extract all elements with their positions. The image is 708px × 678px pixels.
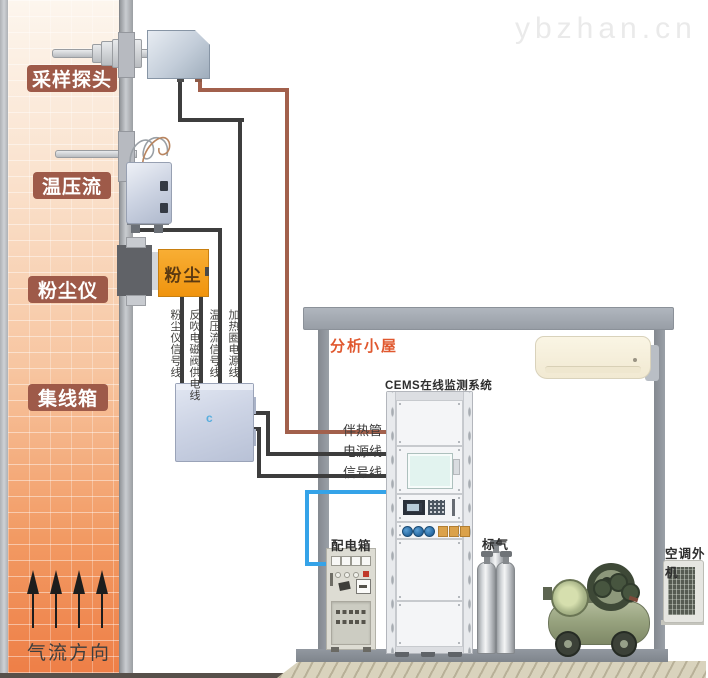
distribution-box	[326, 548, 376, 650]
controller-keypad	[428, 500, 445, 515]
cabinet-rail-right	[463, 392, 472, 653]
wire-signal-v	[257, 427, 261, 478]
wire-blue-v	[305, 490, 309, 566]
controller-slider	[452, 499, 455, 516]
indicator-lamp	[353, 572, 359, 578]
cable-label-power-line: 电源线	[343, 441, 382, 460]
indicator-lamp	[335, 572, 341, 578]
cems-installation-diagram: ybzhan.cn 采样探头 温压流 粉尘仪 集线箱 气流方向 粉尘	[0, 0, 708, 678]
vent-slot-row	[336, 610, 366, 614]
cable-label-heat-traced-tube: 伴热管	[343, 420, 382, 439]
stack-label-dust-meter: 粉尘仪	[28, 276, 108, 303]
cable-label-tpf-signal: 温压流信号线	[207, 309, 220, 378]
ac-indoor-vent	[545, 366, 641, 373]
cable-label-dust-signal: 粉尘仪信号线	[168, 309, 181, 378]
stack-right-wall	[119, 0, 133, 673]
junction-box-logo: c	[206, 411, 213, 425]
dust-mount-cap	[126, 237, 146, 248]
shelter-roof	[303, 307, 674, 330]
terminal-slot	[330, 573, 333, 586]
valve-knob	[424, 526, 435, 537]
distribution-vent-panel	[331, 601, 371, 645]
dust-meter-mount	[117, 245, 152, 296]
sampling-probe-box	[147, 30, 210, 79]
stack-label-junction-box: 集线箱	[28, 384, 108, 411]
dust-mount-cap	[126, 295, 146, 306]
power-meter	[356, 579, 371, 594]
tpf-box-leg	[154, 224, 163, 233]
cable-label-blowback-valve-power: 反吹电磁阀供电线	[187, 309, 200, 401]
probe-wall-plate	[118, 32, 135, 78]
distribution-box-foot	[363, 647, 371, 652]
cable-label-heating-coil-power: 加热圈电源线	[226, 309, 239, 378]
indicator-window	[351, 556, 361, 566]
indicator-window	[341, 556, 351, 566]
compressor-wheel	[555, 631, 581, 657]
stack-left-wall	[0, 0, 8, 673]
heat-traced-tube-v	[285, 88, 289, 434]
dust-meter-tab	[205, 267, 209, 276]
cabinet-rail-left	[387, 392, 396, 653]
flow-meter	[460, 526, 470, 537]
wire-heating-coil-h	[178, 118, 244, 122]
analyzer-side-latch	[453, 459, 460, 475]
valve-knob	[402, 526, 413, 537]
distribution-box-foot	[331, 647, 339, 652]
red-indicator	[363, 571, 369, 577]
ac-indoor-unit	[535, 336, 651, 379]
wire-blue-h1	[305, 490, 390, 494]
cable-label-signal-line: 信号线	[343, 462, 382, 481]
vent-slot-row	[336, 620, 366, 624]
compressor-motor	[551, 579, 589, 617]
cabinet-panel-analyzer	[396, 446, 463, 494]
cabinet-panel-blank	[396, 539, 463, 601]
gas-cylinder	[496, 562, 515, 654]
cabinet-foot	[448, 652, 462, 657]
indicator-lamp	[344, 572, 350, 578]
standard-gas-label: 标气	[482, 534, 509, 553]
indicator-window	[361, 556, 371, 566]
tpf-box-slot	[160, 203, 168, 213]
airflow-direction-label: 气流方向	[27, 638, 111, 665]
flow-meter	[438, 526, 448, 537]
cabinet-panel-valves	[396, 522, 463, 539]
stack-label-sampling-probe: 采样探头	[27, 65, 117, 92]
shelter-title: 分析小屋	[330, 335, 398, 356]
stack-bottom-edge	[0, 673, 299, 678]
compressor-wheel	[611, 631, 637, 657]
analyzer-window	[407, 453, 453, 489]
cems-system-label: CEMS在线监测系统	[385, 377, 492, 393]
breaker-switch	[338, 581, 350, 591]
valve-knob	[413, 526, 424, 537]
wire-tpf-signal-h	[135, 228, 222, 232]
cems-cabinet	[386, 391, 473, 654]
ac-indoor-indicator	[633, 358, 637, 362]
heat-traced-tube-h1	[198, 88, 289, 92]
watermark: ybzhan.cn	[515, 12, 697, 46]
tpf-box-leg	[131, 224, 140, 233]
wire-blue-h2	[305, 562, 328, 566]
distribution-box-label: 配电箱	[331, 535, 372, 554]
dust-meter-device: 粉尘	[158, 249, 209, 297]
tpf-box-slot	[160, 181, 168, 191]
flow-meter	[449, 526, 459, 537]
stack-label-temp-pressure-flow: 温压流	[33, 172, 111, 199]
air-compressor	[543, 563, 653, 655]
controller-display	[403, 500, 425, 515]
cabinet-foot	[421, 652, 435, 657]
airflow-arrows-icon	[24, 568, 110, 630]
cabinet-foot	[395, 652, 409, 657]
compressor-regulator	[543, 587, 552, 600]
cabinet-panel-blank	[396, 601, 463, 647]
wire-power-v	[266, 411, 270, 456]
gas-cylinder	[477, 562, 496, 654]
indicator-window	[331, 556, 341, 566]
cabinet-panel-blank	[396, 400, 463, 446]
cabinet-panel-controller	[396, 494, 463, 522]
ground-hatch	[277, 661, 706, 678]
ac-outdoor-label: 空调外机	[665, 543, 708, 581]
tpf-transmitter-box	[126, 162, 172, 224]
wire-heating-coil-v1	[178, 80, 182, 122]
